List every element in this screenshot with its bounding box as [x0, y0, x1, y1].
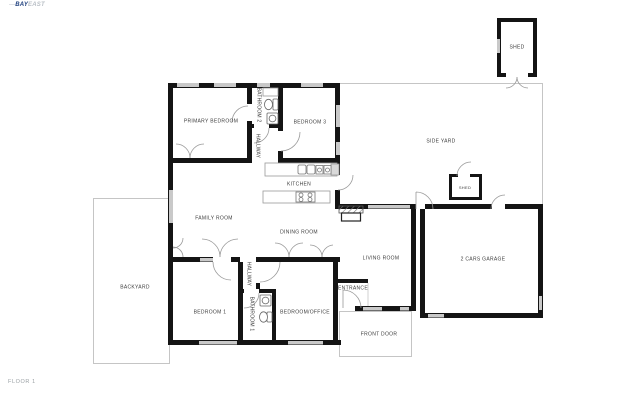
kitchen-island — [263, 191, 330, 203]
room-label-garage: 2 CARS GARAGE — [461, 258, 506, 263]
room-label-side-yard: SIDE YARD — [426, 140, 455, 145]
bathroom2-fixtures — [263, 88, 278, 124]
room-label-hallway-lower: HALLWAY — [246, 262, 251, 286]
room-label-shed-upper: SHED — [509, 46, 524, 51]
room-label-dining-room: DINING ROOM — [280, 231, 318, 236]
room-label-shed-lower: SHED — [459, 186, 471, 190]
floorplan-page: —BAYEAST PRIMARY BEDROOM BATHROOM 2 HALL… — [0, 0, 640, 400]
yard-outlines — [94, 84, 543, 364]
shelf-icon — [263, 88, 278, 96]
bathroom1-fixtures — [260, 295, 273, 322]
room-label-bedroom-office: BEDROOM/OFFICE — [280, 311, 330, 316]
sink-icon — [262, 297, 269, 304]
toilet-icon — [273, 99, 278, 110]
walls — [168, 18, 543, 345]
floor-label: FLOOR 1 — [8, 379, 36, 385]
room-label-bathroom-2: BATHROOM 2 — [256, 88, 261, 123]
logo-secondary-text: EAST — [28, 2, 45, 8]
room-label-living-room: LIVING ROOM — [363, 257, 400, 262]
room-label-front-door: FRONT DOOR — [361, 333, 398, 338]
room-label-kitchen: KITCHEN — [287, 183, 311, 188]
sink-icon — [269, 115, 276, 122]
room-label-backyard: BACKYARD — [120, 286, 150, 291]
fireplace-icon — [339, 206, 363, 221]
room-label-bedroom-3: BEDROOM 3 — [294, 121, 327, 126]
kitchen-appliance — [331, 164, 339, 175]
provider-logo: —BAYEAST — [9, 2, 45, 8]
room-label-bedroom-1: BEDROOM 1 — [194, 311, 227, 316]
floorplan-drawing — [0, 0, 640, 400]
logo-primary-text: BAY — [15, 2, 28, 8]
windows — [169, 39, 542, 345]
room-label-primary-bedroom: PRIMARY BEDROOM — [184, 120, 238, 125]
room-label-family-room: FAMILY ROOM — [195, 217, 233, 222]
stove-icon — [324, 166, 331, 175]
door-arcs — [173, 77, 528, 308]
backyard-outline — [94, 199, 170, 364]
toilet-icon — [260, 312, 268, 322]
kitchen-counter — [265, 163, 339, 176]
kitchen-sink-icon — [298, 165, 306, 174]
room-label-bathroom-1: BATHROOM 1 — [249, 297, 254, 332]
toilet-icon — [265, 99, 273, 109]
room-label-hallway-upper: HALLWAY — [255, 134, 260, 158]
room-label-entrance: ENTRANCE — [338, 287, 368, 292]
kitchen-sink-icon — [307, 165, 315, 174]
stove-icon — [316, 166, 323, 175]
